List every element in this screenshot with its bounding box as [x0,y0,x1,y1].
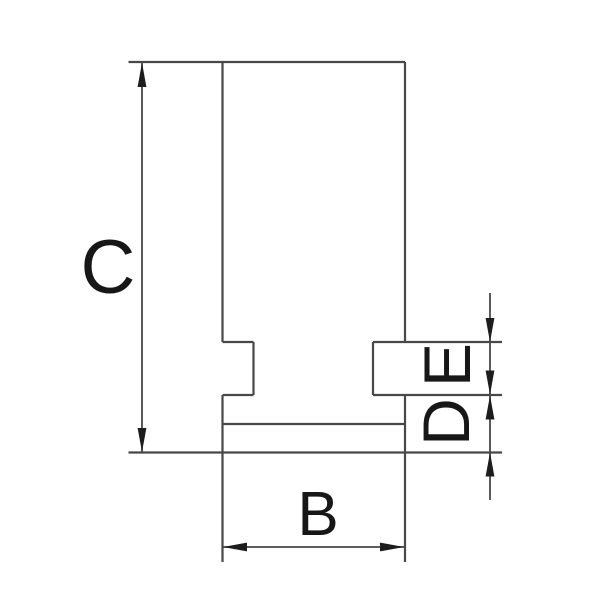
dimension-lines [142,63,490,547]
technical-drawing-canvas: C B E D [0,0,600,600]
arrow-c-bottom [138,428,147,452]
arrow-b-right [380,543,404,552]
dim-label-d: D [413,398,479,446]
arrow-d-top [486,371,495,395]
dimension-arrowheads [138,63,495,552]
arrow-b-left [223,543,247,552]
dim-label-b: B [297,484,338,546]
arrow-e-top [486,318,495,342]
arrow-e-bottom [486,396,495,420]
arrow-d-bottom [486,453,495,477]
dim-label-e: E [414,343,480,387]
arrow-c-top [138,63,147,88]
dim-label-c: C [81,230,136,306]
